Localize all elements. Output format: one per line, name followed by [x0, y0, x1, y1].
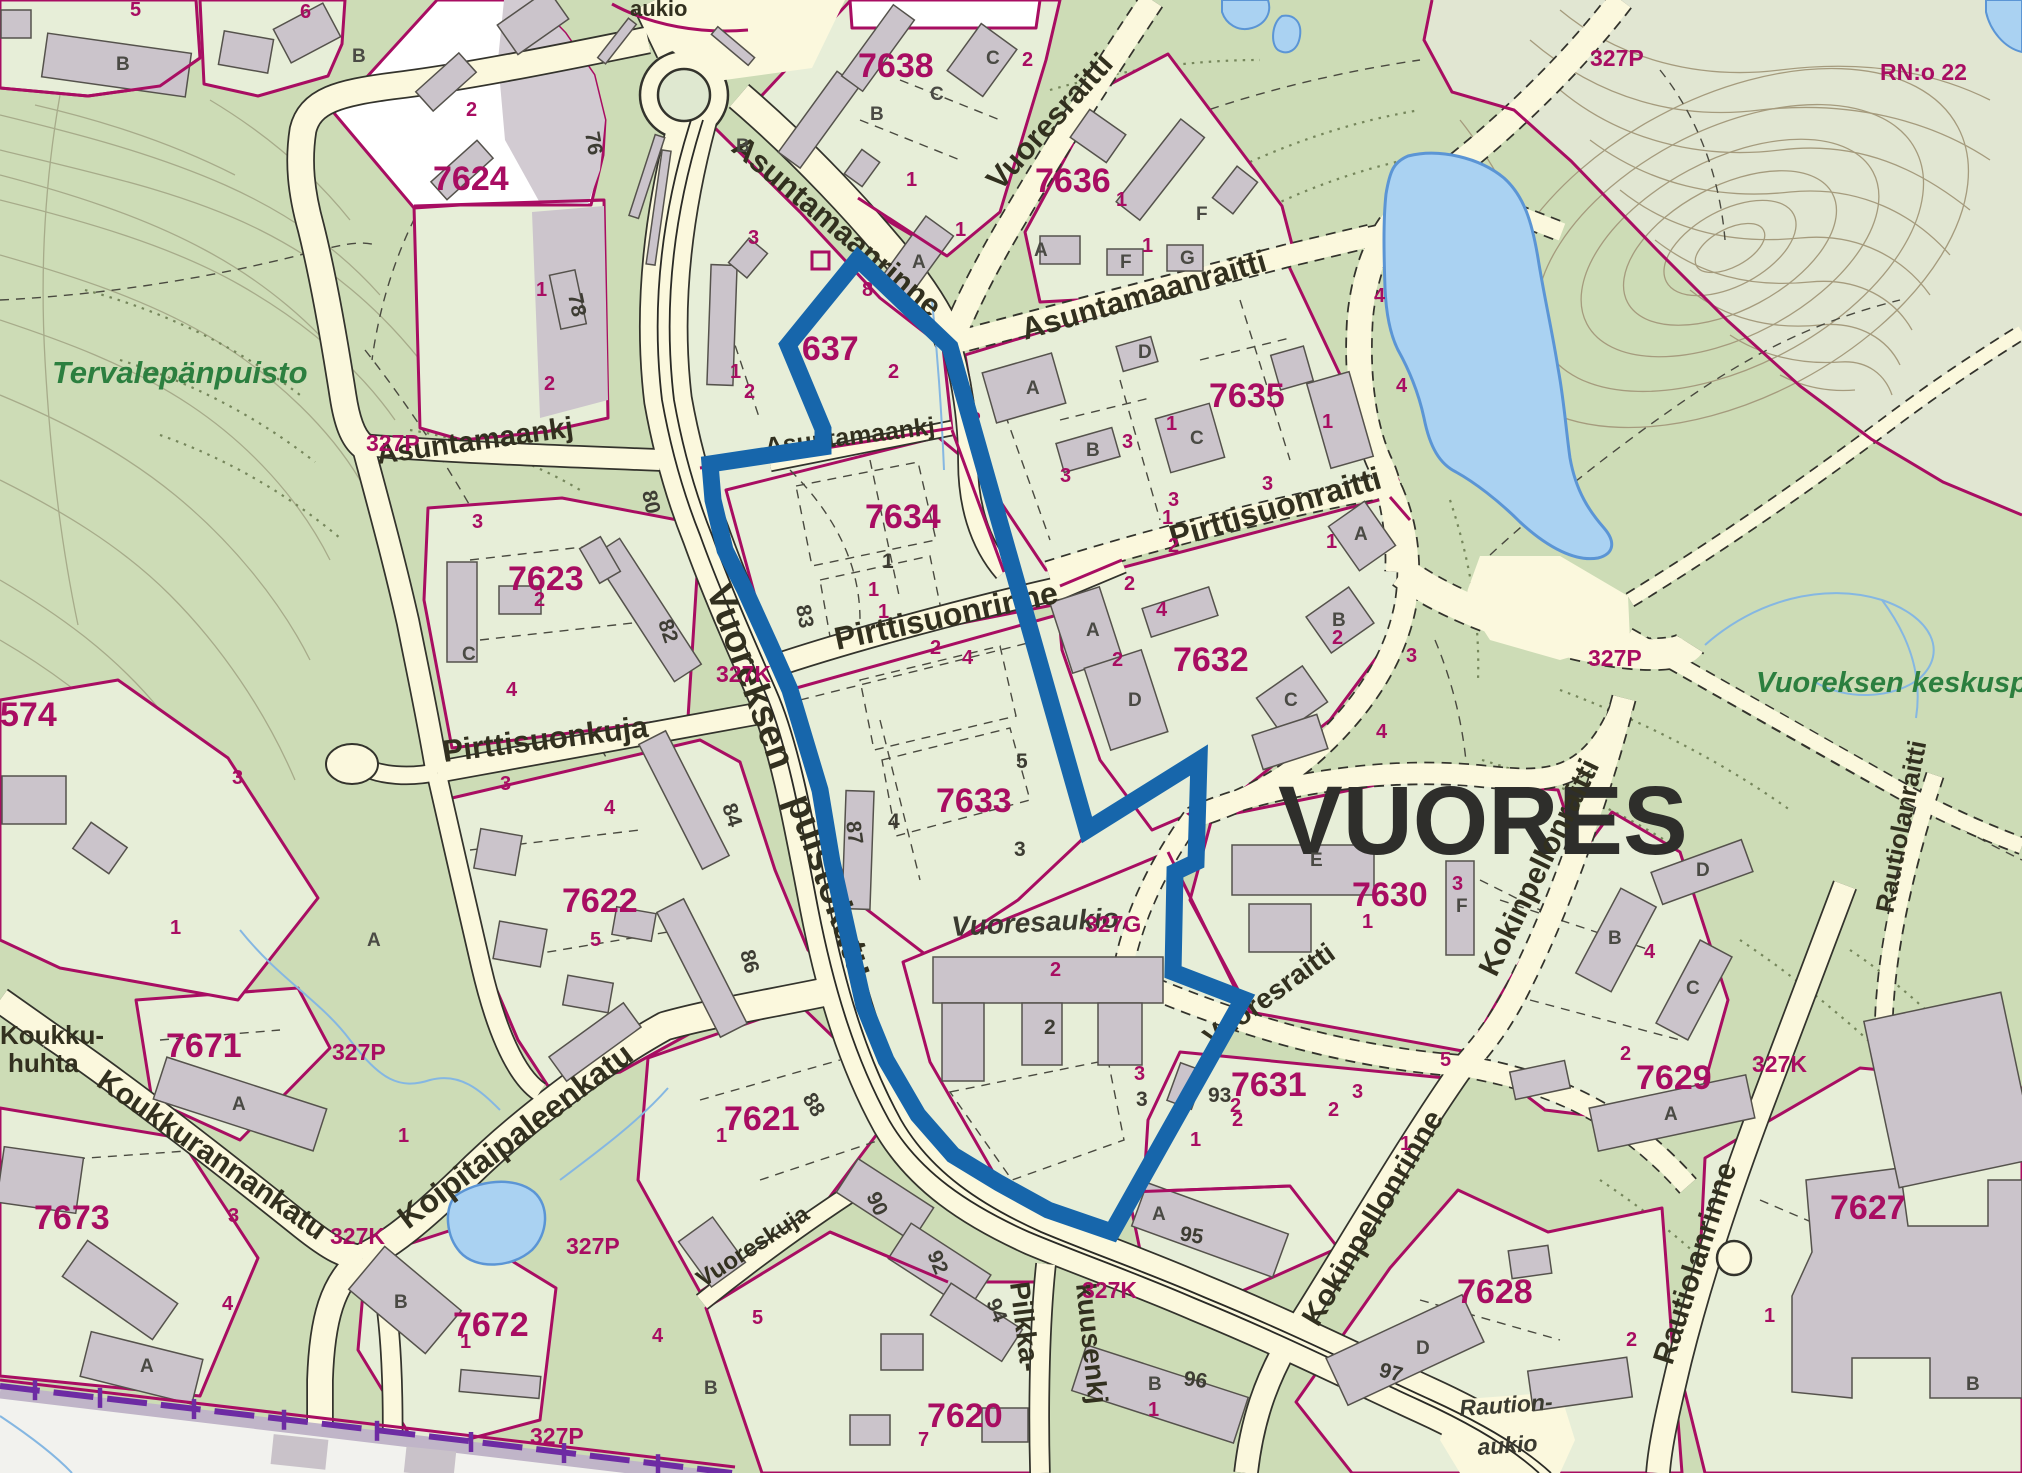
svg-text:327P: 327P: [566, 1233, 620, 1259]
svg-text:2: 2: [1050, 959, 1061, 981]
svg-text:1: 1: [170, 917, 181, 939]
svg-text:A: A: [367, 930, 381, 951]
svg-text:1: 1: [1166, 413, 1177, 435]
svg-text:F: F: [1120, 252, 1132, 273]
svg-text:2: 2: [1124, 573, 1135, 595]
svg-text:A: A: [1086, 620, 1100, 641]
svg-text:C: C: [986, 48, 1000, 69]
svg-text:7622: 7622: [562, 882, 638, 920]
svg-text:4: 4: [652, 1325, 664, 1347]
svg-text:B: B: [870, 104, 884, 125]
svg-text:7630: 7630: [1352, 876, 1428, 914]
svg-text:1: 1: [1148, 1399, 1159, 1421]
svg-text:3: 3: [1014, 838, 1026, 861]
svg-text:1: 1: [868, 579, 879, 601]
svg-text:VUORES: VUORES: [1278, 766, 1688, 875]
svg-text:2: 2: [930, 637, 941, 659]
svg-text:3: 3: [1406, 645, 1417, 667]
svg-text:RN:o 22: RN:o 22: [1880, 59, 1967, 85]
svg-text:4: 4: [1376, 721, 1388, 743]
svg-text:80: 80: [637, 488, 664, 516]
svg-text:D: D: [1138, 342, 1152, 363]
svg-text:7624: 7624: [433, 160, 509, 198]
svg-text:Vuoreksen keskuspu: Vuoreksen keskuspu: [1756, 667, 2022, 699]
svg-text:1: 1: [906, 169, 917, 191]
svg-text:2: 2: [534, 589, 545, 611]
svg-text:B: B: [1608, 928, 1622, 949]
svg-text:B: B: [394, 1292, 408, 1313]
svg-text:7631: 7631: [1231, 1066, 1307, 1104]
svg-text:A: A: [1026, 378, 1040, 399]
svg-text:5: 5: [130, 0, 141, 21]
svg-text:B: B: [704, 1378, 718, 1399]
svg-text:1: 1: [878, 601, 889, 623]
svg-text:F: F: [1196, 204, 1208, 225]
svg-text:1: 1: [1116, 189, 1127, 211]
svg-text:2: 2: [1626, 1329, 1637, 1351]
svg-text:aukio: aukio: [630, 0, 687, 21]
svg-text:1: 1: [398, 1125, 409, 1147]
svg-text:7627: 7627: [1830, 1189, 1906, 1227]
svg-text:3: 3: [1262, 473, 1273, 495]
svg-text:2: 2: [1620, 1043, 1631, 1065]
svg-text:7632: 7632: [1173, 641, 1249, 679]
svg-text:B: B: [1966, 1374, 1980, 1395]
svg-text:D: D: [1128, 690, 1142, 711]
svg-text:aukio: aukio: [1477, 1430, 1539, 1460]
svg-text:7633: 7633: [936, 782, 1012, 820]
svg-text:1: 1: [955, 219, 966, 241]
svg-text:1: 1: [716, 1125, 727, 1147]
svg-text:76: 76: [580, 130, 607, 157]
svg-text:1: 1: [882, 550, 894, 573]
svg-text:5: 5: [1016, 750, 1028, 773]
svg-text:1: 1: [1162, 507, 1173, 529]
svg-text:4: 4: [1396, 375, 1408, 397]
svg-text:7628: 7628: [1457, 1273, 1533, 1311]
svg-text:2: 2: [1232, 1109, 1243, 1131]
svg-text:327K: 327K: [716, 661, 771, 687]
svg-text:3: 3: [1452, 873, 1463, 895]
svg-text:B: B: [1332, 610, 1346, 631]
svg-text:327P: 327P: [332, 1039, 386, 1065]
svg-text:327P: 327P: [1588, 645, 1642, 671]
svg-text:E: E: [1310, 850, 1323, 871]
svg-text:327K: 327K: [330, 1223, 385, 1249]
svg-text:574: 574: [0, 696, 57, 734]
svg-text:C: C: [930, 84, 944, 105]
svg-text:3: 3: [1352, 1081, 1363, 1103]
svg-text:327G: 327G: [1085, 911, 1141, 937]
svg-text:2: 2: [1328, 1099, 1339, 1121]
svg-text:A: A: [1354, 524, 1368, 545]
svg-text:A: A: [912, 252, 926, 273]
svg-text:Koukku-: Koukku-: [0, 1020, 104, 1050]
svg-text:1: 1: [1142, 235, 1153, 257]
svg-text:327K: 327K: [1752, 1051, 1807, 1077]
svg-text:6: 6: [300, 1, 311, 23]
svg-text:1: 1: [460, 1331, 471, 1353]
svg-text:7671: 7671: [166, 1027, 242, 1065]
svg-text:B: B: [116, 54, 130, 75]
svg-text:83: 83: [791, 603, 818, 630]
svg-text:D: D: [1416, 1338, 1430, 1359]
svg-text:7635: 7635: [1209, 377, 1285, 415]
svg-text:C: C: [1284, 690, 1298, 711]
svg-text:G: G: [1180, 248, 1195, 269]
svg-text:Tervalepänpuisto: Tervalepänpuisto: [52, 355, 308, 390]
svg-text:7620: 7620: [927, 1397, 1003, 1435]
svg-text:2: 2: [466, 99, 477, 121]
svg-text:7638: 7638: [858, 47, 934, 85]
svg-text:B: B: [352, 46, 366, 67]
svg-text:1: 1: [536, 279, 547, 301]
svg-text:C: C: [1686, 978, 1700, 999]
svg-text:F: F: [1456, 896, 1468, 917]
svg-text:3: 3: [1136, 1088, 1148, 1111]
svg-text:4: 4: [888, 810, 900, 833]
svg-text:C: C: [462, 644, 476, 665]
svg-text:1: 1: [1400, 1133, 1411, 1155]
svg-text:4: 4: [1374, 285, 1386, 307]
svg-text:5: 5: [590, 929, 601, 951]
svg-text:7: 7: [918, 1429, 929, 1451]
svg-text:B: B: [1086, 440, 1100, 461]
svg-text:A: A: [1034, 240, 1048, 261]
svg-text:3: 3: [500, 773, 511, 795]
svg-text:5: 5: [1440, 1049, 1451, 1071]
svg-text:B: B: [736, 136, 750, 157]
svg-text:2: 2: [1112, 649, 1123, 671]
svg-text:7629: 7629: [1636, 1059, 1712, 1097]
svg-text:A: A: [1664, 1104, 1678, 1125]
svg-text:4: 4: [962, 647, 974, 669]
svg-text:87: 87: [841, 819, 867, 845]
svg-text:327P: 327P: [366, 430, 420, 456]
svg-text:2: 2: [1022, 49, 1033, 71]
svg-text:327P: 327P: [1590, 45, 1644, 71]
svg-text:4: 4: [1644, 941, 1656, 963]
svg-text:4: 4: [222, 1293, 234, 1315]
svg-text:93: 93: [1208, 1084, 1231, 1107]
svg-text:7636: 7636: [1035, 162, 1111, 200]
svg-text:4: 4: [604, 797, 616, 819]
svg-text:3: 3: [748, 227, 759, 249]
svg-text:2: 2: [1168, 535, 1179, 557]
svg-text:4: 4: [1156, 599, 1168, 621]
svg-text:D: D: [1696, 860, 1710, 881]
svg-text:2: 2: [744, 381, 755, 403]
svg-text:7623: 7623: [508, 560, 584, 598]
svg-text:A: A: [1152, 1204, 1166, 1225]
svg-text:96: 96: [1182, 1367, 1208, 1393]
svg-text:huhta: huhta: [8, 1048, 79, 1078]
svg-text:7621: 7621: [724, 1100, 800, 1138]
svg-text:2: 2: [1044, 1016, 1056, 1039]
svg-text:327P: 327P: [530, 1423, 584, 1449]
svg-text:1: 1: [730, 361, 741, 383]
svg-text:3: 3: [1122, 431, 1133, 453]
svg-text:1: 1: [1362, 911, 1373, 933]
svg-text:3: 3: [1134, 1063, 1145, 1085]
svg-text:1: 1: [1326, 531, 1337, 553]
svg-text:1: 1: [1322, 411, 1333, 433]
svg-text:2: 2: [888, 361, 899, 383]
svg-text:A: A: [232, 1094, 246, 1115]
svg-text:A: A: [140, 1356, 154, 1377]
svg-text:7634: 7634: [865, 498, 941, 536]
svg-text:5: 5: [752, 1307, 763, 1329]
svg-text:327K: 327K: [1082, 1277, 1137, 1303]
svg-text:1: 1: [1190, 1129, 1201, 1151]
svg-text:95: 95: [1178, 1222, 1205, 1249]
svg-text:B: B: [1148, 1374, 1162, 1395]
svg-text:7673: 7673: [34, 1199, 110, 1237]
svg-text:2: 2: [544, 373, 555, 395]
svg-text:3: 3: [228, 1205, 239, 1227]
svg-text:3: 3: [1060, 465, 1071, 487]
svg-text:1: 1: [1764, 1305, 1775, 1327]
svg-text:C: C: [1190, 428, 1204, 449]
svg-text:3: 3: [472, 511, 483, 533]
svg-text:4: 4: [506, 679, 518, 701]
svg-text:3: 3: [232, 767, 243, 789]
